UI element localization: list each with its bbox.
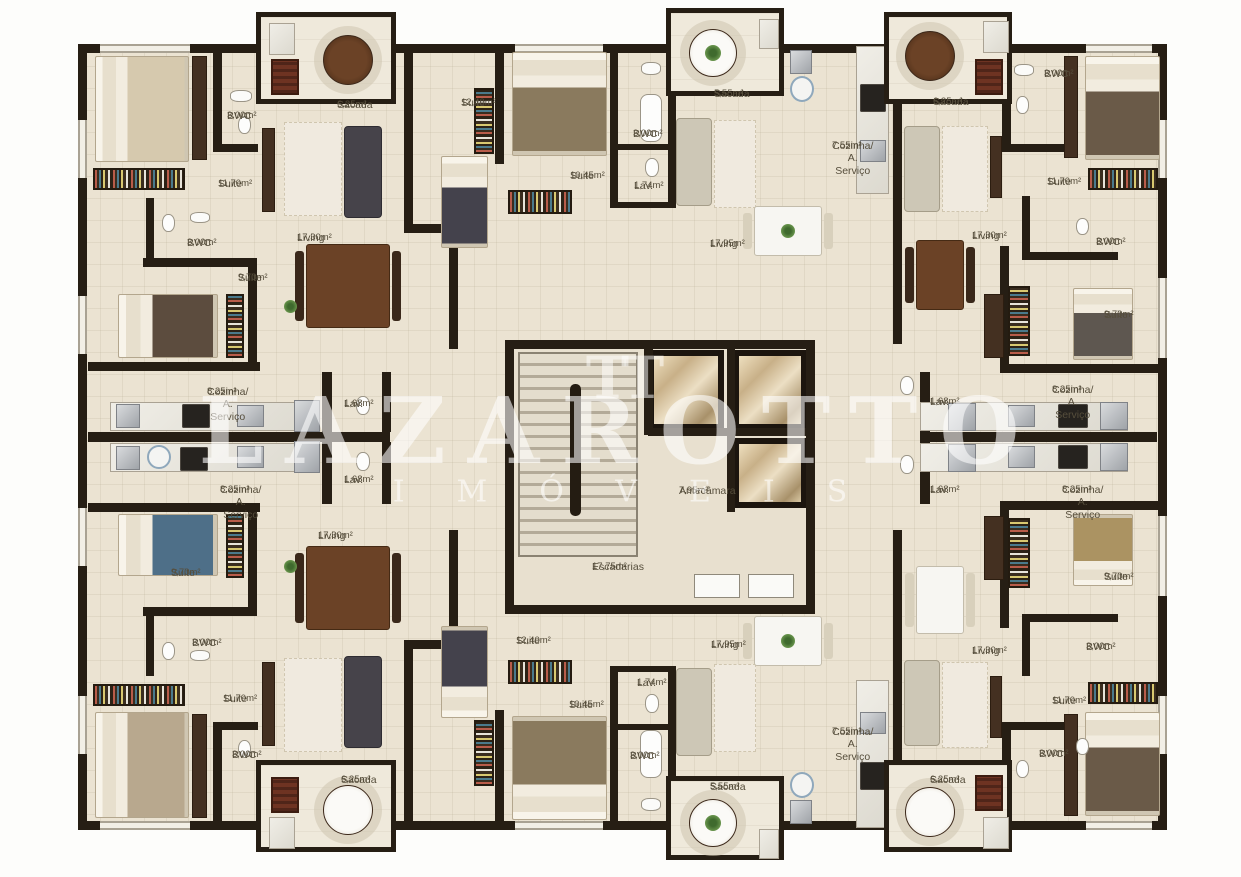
room-area: 17,30m² (318, 530, 353, 541)
room-area: 10,45m² (569, 699, 604, 710)
closet (1008, 518, 1030, 588)
room-area: 9,70m² (171, 567, 201, 578)
washer (147, 445, 171, 469)
sofa (904, 660, 940, 746)
sofa (344, 656, 382, 748)
closet (1008, 286, 1030, 356)
wall (213, 722, 258, 730)
plant (781, 634, 795, 648)
room-area: 17,30m² (297, 232, 332, 243)
wall (610, 666, 676, 672)
window (78, 296, 87, 354)
toilet (645, 694, 659, 713)
room-area: 3,00m² (232, 749, 262, 760)
service-box (694, 574, 740, 598)
window (78, 696, 87, 754)
sink (759, 19, 779, 49)
cooktop (860, 84, 886, 112)
room-area: 1,74m² (634, 180, 664, 191)
bed (118, 294, 218, 358)
balcony (666, 8, 784, 96)
room-area: 6,25m² (930, 774, 960, 785)
room-area: 11,70m² (1047, 176, 1081, 187)
wall (1022, 616, 1030, 676)
round-table (905, 31, 955, 81)
bed (512, 716, 607, 820)
closet (1088, 682, 1158, 704)
wall (495, 44, 504, 164)
round-table (323, 785, 373, 835)
bed (512, 52, 607, 156)
sofa (344, 126, 382, 218)
window (78, 120, 87, 178)
room-area: 3,00m² (192, 637, 222, 648)
sink (190, 650, 210, 661)
room-area: 12,40m² (461, 97, 496, 108)
wall (213, 726, 222, 830)
round-table (905, 787, 955, 837)
dining-table (306, 244, 390, 328)
room-area: 3,00m² (633, 128, 663, 139)
sink (641, 798, 661, 811)
balcony (884, 12, 1012, 104)
window (1086, 44, 1152, 53)
wall (143, 607, 255, 616)
room-area: 3,00m² (187, 237, 217, 248)
dining-table (916, 240, 964, 310)
toilet (1076, 738, 1089, 755)
tv-panel (262, 128, 275, 212)
room-area: 12,40m² (516, 635, 551, 646)
plant (781, 224, 795, 238)
rug (714, 664, 756, 752)
room-area: 17,75m² (592, 561, 627, 572)
wall (610, 144, 676, 150)
wall (610, 202, 676, 208)
room-area: 5,55m² (714, 88, 744, 99)
sink (230, 90, 252, 102)
bed (1085, 712, 1160, 816)
toilet (1016, 96, 1029, 114)
bed (441, 626, 488, 718)
watermark-subtitle: IMÓVEIS (341, 475, 900, 510)
wall (505, 340, 815, 349)
fridge (116, 446, 140, 470)
cooktop (860, 762, 886, 790)
tv-panel (990, 136, 1002, 198)
dining-table (916, 566, 964, 634)
closet (226, 514, 244, 578)
sink (269, 817, 295, 849)
window (78, 508, 87, 566)
room-area: 1,74m² (637, 677, 667, 688)
wall (143, 258, 255, 267)
wall (610, 724, 676, 730)
room-area: 1,68m² (930, 484, 960, 495)
watermark-brand: LAZAROTTO (199, 377, 1042, 485)
room-area: 10,45m² (570, 170, 605, 181)
tv-panel (990, 676, 1002, 738)
wall (213, 44, 222, 148)
wall (404, 44, 413, 232)
oven (1100, 443, 1128, 471)
room-area: 8,25m² (1052, 384, 1082, 395)
cooktop (1058, 445, 1088, 469)
bed (95, 712, 189, 818)
rug (942, 126, 988, 212)
toilet (162, 642, 175, 660)
window (100, 821, 190, 830)
oven (1100, 402, 1128, 430)
room-area: 3,00m² (1096, 236, 1126, 247)
tv-panel (262, 662, 275, 746)
room-area: 5,55m² (710, 781, 740, 792)
toilet (1076, 218, 1089, 235)
sink (983, 817, 1009, 849)
room-area: 11,70m² (218, 178, 252, 189)
wall (213, 144, 258, 152)
wall (146, 614, 154, 676)
sink (983, 21, 1009, 53)
sink (759, 829, 779, 859)
room-area: 6,25m² (933, 96, 963, 107)
grill (271, 59, 299, 95)
closet (474, 720, 494, 786)
oven (790, 800, 812, 824)
service-box (748, 574, 794, 598)
toilet (1016, 760, 1029, 778)
room-area: 3,00m² (1086, 641, 1116, 652)
wall (404, 642, 413, 830)
room-area: 9,70m² (238, 272, 268, 283)
wall (1002, 722, 1064, 730)
rug (284, 658, 342, 752)
sink (190, 212, 210, 223)
closet (508, 660, 572, 684)
grill (271, 777, 299, 813)
room-area: 9,70m² (1104, 571, 1134, 582)
sink (641, 62, 661, 75)
wall (610, 668, 618, 830)
wall (610, 44, 618, 206)
room-area: 7,55m² (832, 726, 862, 737)
room-area: 17,30m² (972, 230, 1007, 241)
toilet (645, 158, 659, 177)
room-area: 17,95m² (711, 639, 746, 650)
wall (495, 710, 504, 830)
wall (505, 605, 815, 614)
washer (790, 76, 814, 102)
wall (1022, 614, 1118, 622)
wall (1022, 196, 1030, 256)
sofa (676, 118, 712, 206)
rug (714, 120, 756, 208)
room-area: 11,70m² (223, 693, 257, 704)
balcony (256, 12, 396, 104)
sink (1014, 64, 1034, 76)
window (1086, 821, 1152, 830)
wall (1002, 144, 1064, 152)
window (515, 821, 603, 830)
wall (248, 508, 257, 616)
rug (284, 122, 342, 216)
sofa (676, 668, 712, 756)
dining-table (306, 546, 390, 630)
window (100, 44, 190, 53)
closet (93, 168, 185, 190)
bed (118, 514, 218, 576)
window (1158, 516, 1167, 596)
round-table (323, 35, 373, 85)
bed (95, 56, 189, 162)
wall (146, 198, 154, 260)
room-area: 17,95m² (710, 238, 745, 249)
grill (975, 775, 1003, 811)
floorplan: BWC3,00m² Sacada6,25m² Suite11,70m² BWC3… (0, 0, 1241, 877)
wall (1022, 252, 1118, 260)
plant (705, 815, 721, 831)
wardrobe (192, 714, 207, 818)
room-area: 11,70m² (1052, 695, 1086, 706)
bed (1073, 288, 1133, 360)
room-area: 3,00m² (1044, 68, 1074, 79)
room-area: 9,70m² (1104, 309, 1134, 320)
wardrobe (984, 516, 1004, 580)
fridge (116, 404, 140, 428)
washer (790, 772, 814, 798)
sink (269, 23, 295, 55)
room-area: 6,25m² (341, 774, 371, 785)
window (1158, 278, 1167, 358)
toilet (162, 214, 175, 232)
sofa (904, 126, 940, 212)
closet (226, 294, 244, 358)
room-area: 3,00m² (630, 750, 660, 761)
closet (93, 684, 185, 706)
plant (705, 45, 721, 61)
closet (508, 190, 572, 214)
grill (975, 59, 1003, 95)
room-area: 8,25m² (220, 484, 250, 495)
bed (1085, 56, 1160, 160)
plant (284, 560, 297, 573)
wardrobe (984, 294, 1004, 358)
wall (1000, 364, 1160, 373)
wardrobe (1064, 714, 1078, 816)
plant (284, 300, 297, 313)
rug (942, 662, 988, 748)
closet (1088, 168, 1158, 190)
bed (441, 156, 488, 248)
oven (790, 50, 812, 74)
room-area: 3,00m² (1039, 748, 1069, 759)
wardrobe (192, 56, 207, 160)
room-area: 17,30m² (972, 645, 1007, 656)
room-area: 3,00m² (227, 110, 257, 121)
room-area: 8,25m² (1062, 484, 1092, 495)
wall (88, 362, 260, 371)
room-area: 6,25m² (337, 99, 367, 110)
room-area: 7,55m² (832, 140, 862, 151)
